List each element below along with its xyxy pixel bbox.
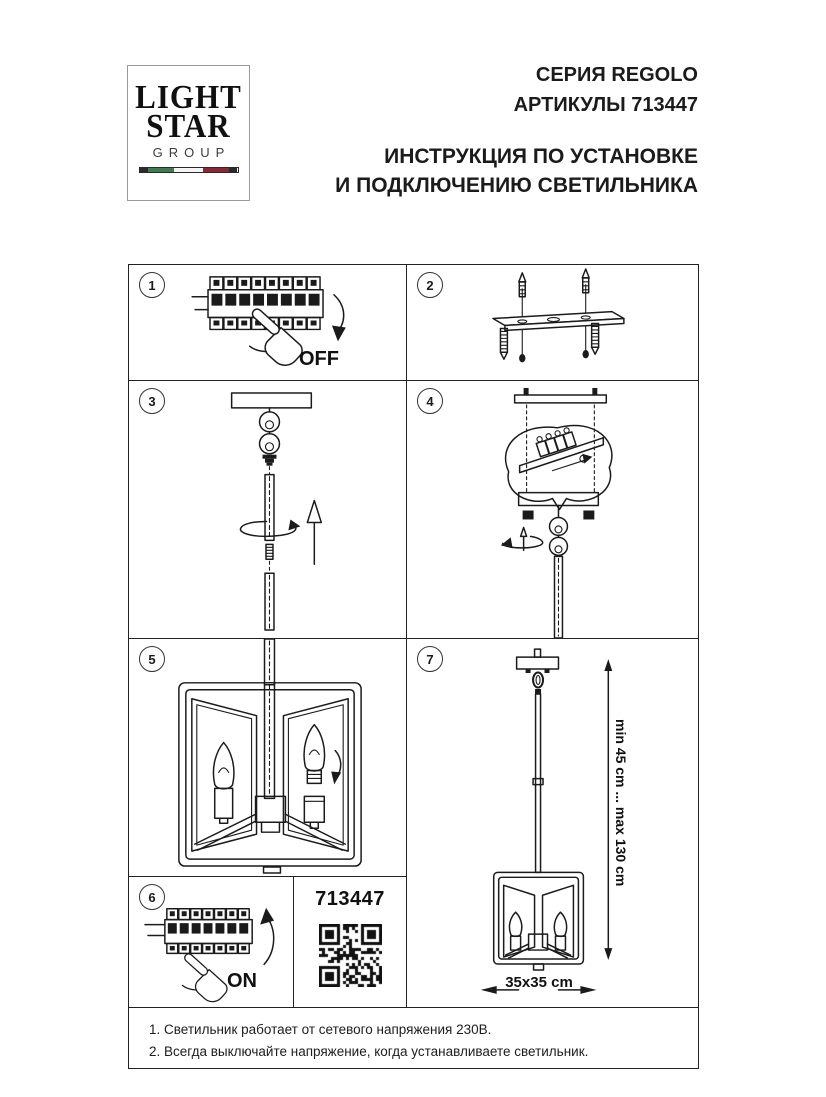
hand-icon <box>169 952 230 1007</box>
step-5-number: 5 <box>139 646 165 672</box>
bulb-install-diagram <box>129 639 406 876</box>
bulb-icon <box>213 743 233 824</box>
bulb-icon <box>304 725 324 784</box>
series-title: СЕРИЯ REGOLO <box>514 60 698 90</box>
article-number: 713447 <box>294 888 406 911</box>
screw-icon <box>592 323 599 354</box>
breaker-off-diagram <box>129 265 406 380</box>
mounting-bar-diagram <box>407 265 698 380</box>
step-7-number: 7 <box>417 646 443 672</box>
terminal-block-icon <box>520 427 604 473</box>
note-1: 1. Светильник работает от сетевого напря… <box>149 1019 684 1041</box>
pendant-dimensions-diagram <box>407 639 698 1007</box>
title-line-2: И ПОДКЛЮЧЕНИЮ СВЕТИЛЬНИКА <box>335 171 698 200</box>
step-6-panel: 6 <box>128 876 293 1007</box>
off-label: OFF <box>299 348 339 371</box>
logo-word-group: GROUP <box>128 145 249 160</box>
document-title: ИНСТРУКЦИЯ ПО УСТАНОВКЕ И ПОДКЛЮЧЕНИЮ СВ… <box>335 142 698 200</box>
wiring-diagram <box>407 381 698 638</box>
screw-icon <box>500 328 507 359</box>
article-qr-panel: 713447 <box>293 876 406 1007</box>
title-line-1: ИНСТРУКЦИЯ ПО УСТАНОВКЕ <box>335 142 698 171</box>
step-4-number: 4 <box>417 388 443 414</box>
step-1-panel: 1 <box>128 264 406 380</box>
step-7-panel: 7 <box>406 638 698 1007</box>
step-5-panel: 5 <box>128 638 406 876</box>
lightstar-logo: LIGHT STAR GROUP <box>127 65 250 201</box>
instruction-sheet: LIGHT STAR GROUP СЕРИЯ REGOLO АРТИКУЛЫ 7… <box>0 0 826 1097</box>
chain-link-icon <box>550 517 568 555</box>
step-2-panel: 2 <box>406 264 698 380</box>
on-label: ON <box>227 970 257 993</box>
rotate-arrow-icon <box>501 527 543 550</box>
italian-flag-bar-icon <box>139 167 239 173</box>
arrow-up-icon <box>260 908 274 965</box>
qr-code-icon <box>319 924 382 987</box>
arrow-up-icon <box>307 501 321 565</box>
step-4-panel: 4 <box>406 380 698 638</box>
height-range-label: min 45 cm ... max 130 cm <box>613 719 629 886</box>
series-article-block: СЕРИЯ REGOLO АРТИКУЛЫ 713447 <box>514 60 698 120</box>
note-2: 2. Всегда выключайте напряжение, когда у… <box>149 1041 684 1063</box>
chain-link-icon <box>260 412 280 454</box>
socket <box>304 796 324 828</box>
arrow-down-icon <box>331 751 341 785</box>
step-2-number: 2 <box>417 272 443 298</box>
rod-assembly-diagram <box>129 381 406 638</box>
vertical-dimension-arrow <box>604 659 612 960</box>
article-numbers: АРТИКУЛЫ 713447 <box>514 90 698 120</box>
notes-panel: 1. Светильник работает от сетевого напря… <box>128 1007 698 1068</box>
width-dimension-label: 35x35 cm <box>483 974 595 991</box>
step-1-number: 1 <box>139 272 165 298</box>
arrow-down-icon <box>332 295 346 342</box>
chain-link-icon <box>533 673 543 688</box>
mounting-bar <box>493 312 624 331</box>
bulb-icon <box>554 912 566 950</box>
step-6-number: 6 <box>139 884 165 910</box>
step-3-number: 3 <box>139 388 165 414</box>
bulb-icon <box>509 912 521 950</box>
steps-grid: 1 <box>128 264 699 1069</box>
step-3-panel: 3 <box>128 380 406 638</box>
logo-word-star: STAR <box>128 110 249 141</box>
rotate-arrow-icon <box>240 519 300 536</box>
